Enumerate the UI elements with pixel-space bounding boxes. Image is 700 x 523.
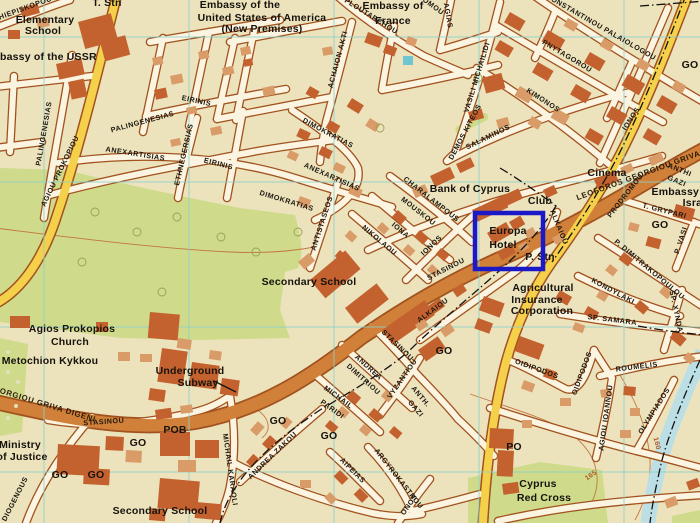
label-go: GO <box>321 430 338 442</box>
scanned-street-map: ElementarySchoolEmbassy of the USSREmbas… <box>0 0 700 523</box>
label-israel: Israel <box>683 197 700 209</box>
label-embassy-of-the: Embassy of the <box>200 0 280 11</box>
label-church: Church <box>51 336 89 348</box>
label-europa: Europa <box>489 225 526 237</box>
corner-green <box>672 510 700 523</box>
label-red-cross: Red Cross <box>517 492 571 504</box>
label-corporation: Corporation <box>511 305 573 317</box>
label-metochion-kykkou: Metochion Kykkou <box>2 355 99 367</box>
map-canvas: ElementarySchoolEmbassy of the USSREmbas… <box>0 0 700 523</box>
label-of-justice: of Justice <box>0 451 48 463</box>
label-bank-of-cyprus: Bank of Cyprus <box>430 183 510 195</box>
label--new-premises-: (New Premises) <box>221 23 302 35</box>
label-p-stn: P. Stn <box>525 251 555 263</box>
label-go: GO <box>652 219 669 231</box>
label-underground: Underground <box>156 365 225 377</box>
label-subway: Subway <box>178 377 219 389</box>
label-ministry: Ministry <box>0 439 41 451</box>
label-club: Club <box>528 195 552 207</box>
label-t-stn: T. Stn <box>92 0 121 9</box>
label-go: GO <box>436 345 453 357</box>
label-agricultural: Agricultural <box>512 282 573 294</box>
label-secondary-school: Secondary School <box>262 276 357 288</box>
label-omou: OMOU <box>421 0 446 17</box>
label-secondary-school: Secondary School <box>113 505 208 517</box>
label-agios-prokopios: Agios Prokopios <box>29 323 115 335</box>
label-go: GO <box>270 415 287 427</box>
label-go: GO <box>52 469 69 481</box>
label-embassy-of-the-ussr: Embassy of the USSR <box>0 51 97 63</box>
label-kondylaki: KONDYLAKI <box>590 276 636 306</box>
label-po: PO <box>506 441 522 453</box>
label-hotel: Hotel <box>489 239 516 251</box>
label-go: GO <box>682 59 699 71</box>
label-school: School <box>25 25 61 37</box>
label-go: GO <box>130 437 147 449</box>
label-go: GO <box>88 469 105 481</box>
label-cyprus: Cyprus <box>519 478 556 490</box>
label-pob: POB <box>163 424 187 436</box>
